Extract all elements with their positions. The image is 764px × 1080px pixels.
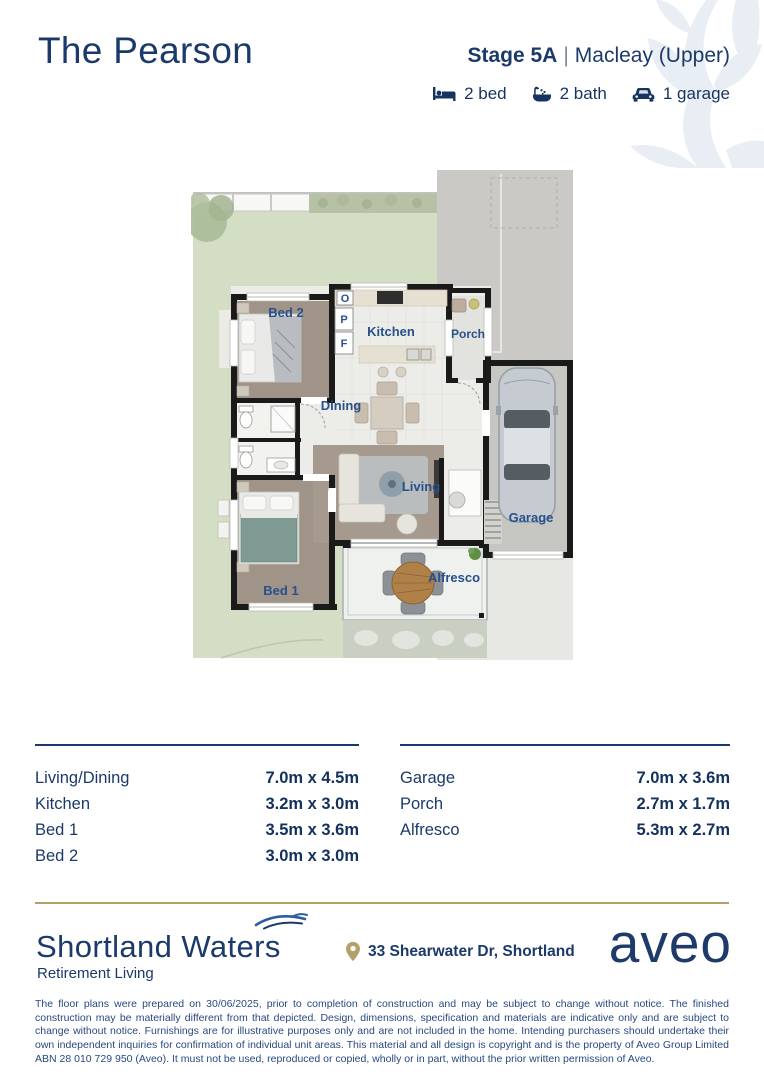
aveo-logo: aveo — [609, 916, 732, 971]
bird-swoosh-icon — [252, 911, 308, 936]
dimension-size: 5.3m x 2.7m — [636, 821, 730, 840]
dimension-size: 7.0m x 3.6m — [636, 769, 730, 788]
dimensions-table-left: Living/Dining 7.0m x 4.5m Kitchen 3.2m x… — [35, 744, 359, 873]
dimension-row: Bed 2 3.0m x 3.0m — [35, 847, 359, 873]
stage-separator: | — [557, 44, 574, 67]
dimension-row: Bed 1 3.5m x 3.6m — [35, 821, 359, 847]
study-nook — [449, 470, 481, 516]
room-label-bed1: Bed 1 — [263, 583, 298, 598]
dimension-size: 7.0m x 4.5m — [265, 769, 359, 788]
room-label-kitchen: Kitchen — [367, 324, 415, 339]
location-pin-icon — [346, 941, 360, 962]
stage-label: Stage 5A — [467, 44, 557, 67]
dimension-room: Living/Dining — [35, 769, 129, 788]
feature-bath: 2 bath — [531, 84, 607, 104]
room-label-bed2: Bed 2 — [268, 305, 303, 320]
floorplan-flyer-page: The Pearson Stage 5A|Macleay (Upper) 2 b… — [0, 0, 764, 1080]
page-title: The Pearson — [38, 30, 253, 72]
car-icon — [631, 86, 656, 103]
appliance-label-pantry: P — [340, 314, 347, 326]
feature-garage-label: 1 garage — [663, 84, 730, 104]
bed-icon — [432, 86, 457, 103]
footer-divider — [35, 902, 729, 904]
floorplan: Bed 2 Kitchen Porch Dining Living Garage… — [191, 170, 573, 665]
feature-garage: 1 garage — [631, 84, 730, 104]
appliance-label-oven: O — [341, 293, 350, 305]
dimension-row: Living/Dining 7.0m x 4.5m — [35, 769, 359, 795]
stage-variant-line: Stage 5A|Macleay (Upper) — [467, 44, 730, 68]
dimensions-rule-left — [35, 744, 359, 746]
variant-label: Macleay (Upper) — [575, 44, 730, 67]
feature-bed: 2 bed — [432, 84, 507, 104]
dimensions-table-right: Garage 7.0m x 3.6m Porch 2.7m x 1.7m Alf… — [400, 744, 730, 847]
dimension-size: 3.2m x 3.0m — [265, 795, 359, 814]
dimension-size: 2.7m x 1.7m — [636, 795, 730, 814]
bath-icon — [531, 86, 553, 103]
address-block: 33 Shearwater Dr, Shortland — [346, 941, 575, 962]
dimension-room: Bed 1 — [35, 821, 78, 840]
appliance-label-fridge: F — [341, 338, 348, 350]
dimension-room: Kitchen — [35, 795, 90, 814]
dimension-room: Bed 2 — [35, 847, 78, 866]
dimension-room: Garage — [400, 769, 455, 788]
floorplan-svg: Bed 2 Kitchen Porch Dining Living Garage… — [191, 170, 573, 665]
feature-summary: 2 bed 2 bath — [432, 84, 730, 104]
brand-subtitle: Retirement Living — [37, 965, 154, 982]
dimension-row: Kitchen 3.2m x 3.0m — [35, 795, 359, 821]
disclaimer-text: The floor plans were prepared on 30/06/2… — [35, 998, 729, 1067]
dimension-row: Garage 7.0m x 3.6m — [400, 769, 730, 795]
dimension-size: 3.5m x 3.6m — [265, 821, 359, 840]
room-label-garage: Garage — [509, 510, 554, 525]
shortland-waters-logo: Shortland Waters — [36, 929, 281, 965]
feature-bath-label: 2 bath — [560, 84, 607, 104]
dimension-row: Alfresco 5.3m x 2.7m — [400, 821, 730, 847]
bed1-furniture — [237, 482, 299, 572]
dimensions-rule-right — [400, 744, 730, 746]
room-label-alfresco: Alfresco — [428, 570, 480, 585]
address-text: 33 Shearwater Dr, Shortland — [368, 943, 575, 961]
dimension-room: Alfresco — [400, 821, 460, 840]
dimension-row: Porch 2.7m x 1.7m — [400, 795, 730, 821]
feature-bed-label: 2 bed — [464, 84, 507, 104]
dimension-size: 3.0m x 3.0m — [265, 847, 359, 866]
room-label-porch: Porch — [451, 327, 485, 341]
room-label-dining: Dining — [321, 398, 361, 413]
room-label-living: Living — [402, 479, 440, 494]
dimension-room: Porch — [400, 795, 443, 814]
